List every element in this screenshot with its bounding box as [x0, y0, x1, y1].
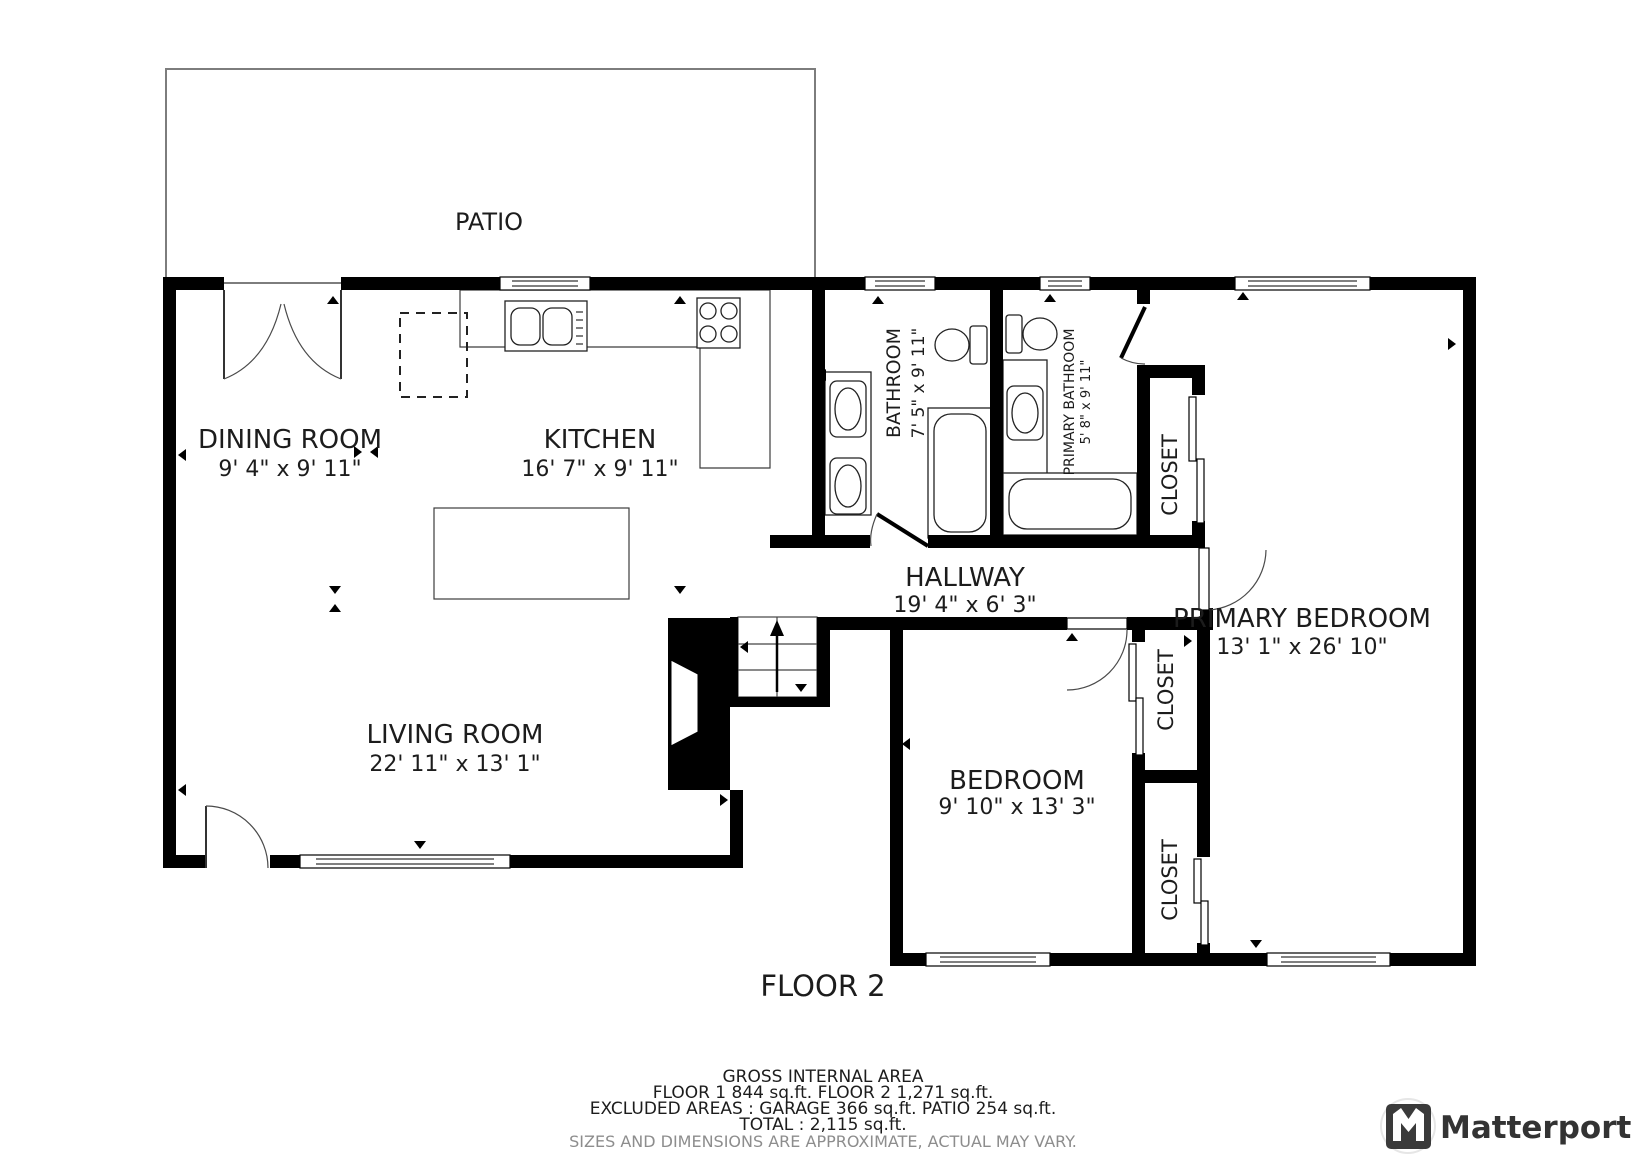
primary-bathroom-label: PRIMARY BATHROOM: [1062, 329, 1078, 476]
primary-bedroom-label: PRIMARY BEDROOM: [1173, 604, 1431, 634]
primary-bathroom-door-icon: [1121, 307, 1145, 364]
living-room-window-icon: [300, 855, 510, 868]
closet-bedroom-bottom-label: CLOSET: [1158, 839, 1182, 921]
primary-bedroom-top-window-icon: [1235, 277, 1370, 290]
patio-label: PATIO: [455, 208, 523, 236]
entry-door-icon: [206, 806, 268, 868]
bathroom-bathtub-icon: [928, 408, 992, 538]
refrigerator-dashed-icon: [400, 313, 467, 397]
footer-disclaimer: SIZES AND DIMENSIONS ARE APPROXIMATE, AC…: [569, 1132, 1077, 1151]
closet-primary-label: CLOSET: [1158, 434, 1182, 516]
living-room-dims: 22' 11" x 13' 1": [369, 752, 540, 777]
primary-bathroom-dims: 5' 8" x 9' 11": [1079, 360, 1094, 445]
primary-bedroom-dims: 13' 1" x 26' 10": [1216, 635, 1387, 660]
primary-bathroom-bathtub-icon: [1003, 473, 1137, 535]
bathroom-door-icon: [871, 514, 928, 546]
fireplace-icon: [668, 618, 730, 790]
patio-double-door-icon: [224, 290, 341, 379]
floor-plan-page: PATIO DINING ROOM 9' 4" x 9' 11" KITCHEN…: [0, 0, 1647, 1164]
floor-label: FLOOR 2: [760, 969, 885, 1003]
kitchen-dims: 16' 7" x 9' 11": [521, 457, 678, 482]
dining-room-label: DINING ROOM: [198, 425, 382, 455]
bathroom-dims: 7' 5" x 9' 11": [909, 328, 929, 439]
bedroom-closet-sliding-door-icon: [1129, 642, 1145, 755]
kitchen-island-icon: [434, 508, 629, 599]
bedroom-dims: 9' 10" x 13' 3": [938, 795, 1095, 820]
hallway-label: HALLWAY: [905, 563, 1025, 593]
kitchen-label: KITCHEN: [544, 425, 657, 455]
stairs-icon: [738, 617, 817, 697]
footer: GROSS INTERNAL AREA FLOOR 1 844 sq.ft. F…: [569, 1067, 1077, 1151]
primary-bathroom-toilet-icon: [1006, 315, 1057, 353]
patio-area: [166, 69, 815, 283]
primary-bedroom-door-icon: [1199, 548, 1266, 610]
living-room-label: LIVING ROOM: [367, 720, 544, 750]
primary-bathroom-window-icon: [1040, 277, 1090, 290]
floor-plan-canvas: PATIO DINING ROOM 9' 4" x 9' 11" KITCHEN…: [0, 0, 1647, 1164]
bathroom-toilet-icon: [935, 326, 987, 364]
dining-room-dims: 9' 4" x 9' 11": [218, 457, 361, 482]
bathroom-label: BATHROOM: [883, 328, 905, 438]
stove-icon: [697, 298, 740, 348]
kitchen-window-icon: [500, 277, 590, 290]
bottom-closet-sliding-door-icon: [1194, 857, 1210, 945]
matterport-logo: Matterport: [1381, 1099, 1631, 1153]
primary-bedroom-bottom-window-icon: [1267, 953, 1390, 966]
closet-bedroom-top-label: CLOSET: [1154, 649, 1178, 731]
logo-text: Matterport: [1440, 1110, 1631, 1146]
bathroom-vanity-icon: [825, 372, 871, 515]
kitchen-sink-icon: [505, 301, 587, 351]
primary-closet-sliding-door-icon: [1189, 395, 1205, 523]
bedroom-window-icon: [926, 953, 1050, 966]
bedroom-label: BEDROOM: [949, 766, 1085, 796]
primary-bathroom-vanity-icon: [1003, 360, 1047, 475]
bedroom-door-icon: [1067, 618, 1127, 690]
hallway-dims: 19' 4" x 6' 3": [893, 593, 1036, 618]
bathroom-window-icon: [865, 277, 935, 290]
